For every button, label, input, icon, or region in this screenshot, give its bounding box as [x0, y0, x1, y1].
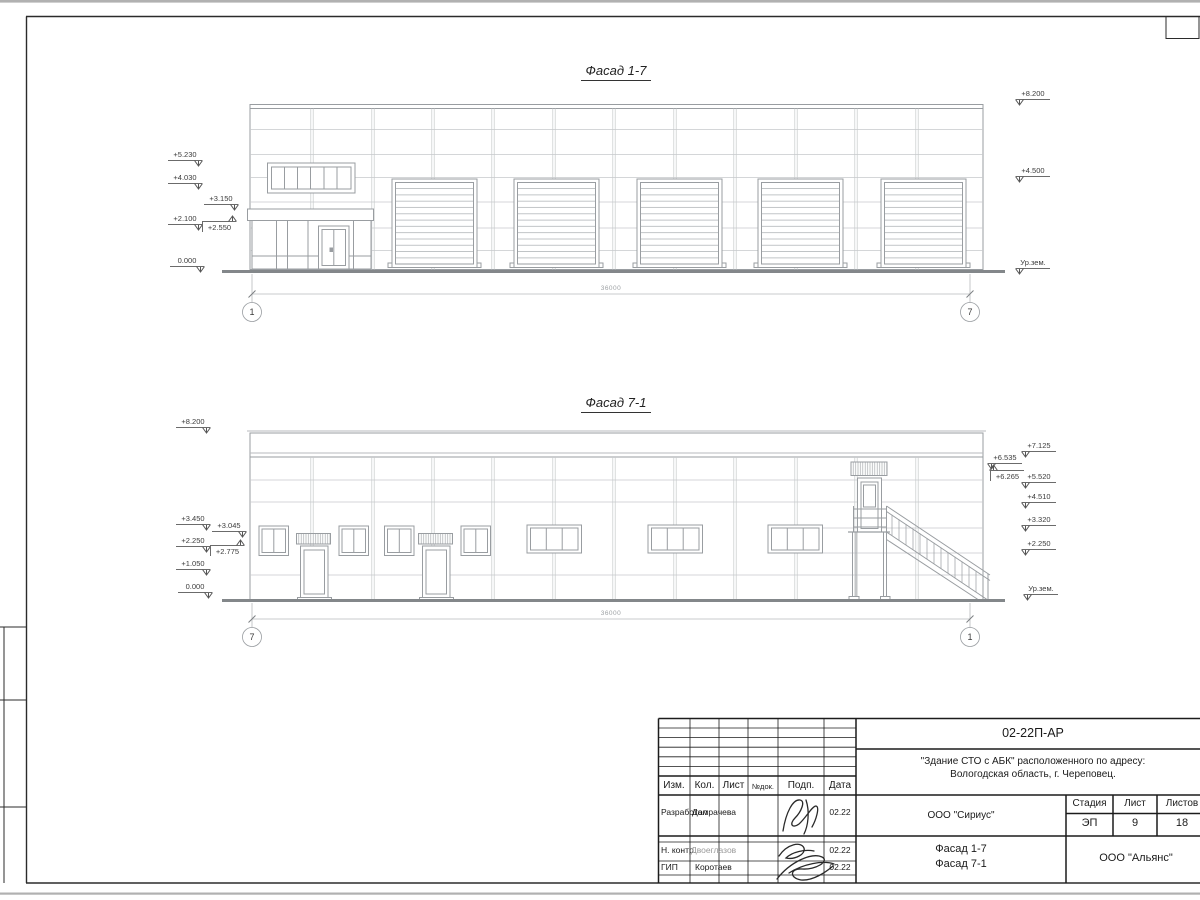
date-developer: 02.22 [824, 807, 856, 817]
window [385, 526, 415, 556]
elevation-mark: +8.200 [176, 417, 210, 428]
stage-value: ЭП [1066, 817, 1113, 829]
garage-door [877, 179, 970, 268]
garage-door [754, 179, 847, 268]
entrance-glazing [248, 163, 374, 269]
facade-top-title: Фасад 1-7 [521, 63, 711, 81]
project-address-line2: Вологодская область, г. Череповец. [860, 769, 1200, 780]
elevation-mark: +2.250 [1022, 539, 1056, 550]
sheets-total: 18 [1157, 817, 1200, 829]
window [461, 526, 491, 556]
stair-rails [887, 506, 991, 602]
small-windows [259, 526, 491, 556]
elevation-mark: 0.000 [178, 582, 212, 593]
door-canopy [297, 534, 330, 544]
elevation-mark: +7.125 [1022, 441, 1056, 452]
elevation-mark: +3.450 [176, 514, 210, 525]
elevation-mark: +1.050 [176, 559, 210, 570]
col-header-list: Лист [719, 780, 748, 791]
col-header-izm: Изм. [658, 780, 690, 791]
sheets-header: Листов [1157, 798, 1200, 809]
drawing-sheet: Фасад 1-7 Фасад 7-1 36000 36000 1 7 7 1 … [0, 0, 1200, 900]
col-header-ndok: №док. [748, 782, 778, 791]
window [339, 526, 369, 556]
signature-developer [783, 800, 818, 834]
window [259, 526, 289, 556]
garage-door [510, 179, 603, 268]
drawing-title-line1: Фасад 1-7 [856, 843, 1066, 855]
axis-label: 7 [244, 632, 260, 642]
date-gip: 02.22 [824, 862, 856, 872]
door-handle [330, 248, 334, 253]
document-code: 02-22П-АР [900, 726, 1166, 740]
elevation-mark: +4.030 [168, 173, 202, 184]
name-control: Двоеглазов [691, 845, 736, 855]
large-windows [527, 525, 823, 553]
entrance-canopy [248, 209, 374, 221]
project-address-line1: "Здание СТО с АБК" расположенного по адр… [860, 756, 1200, 767]
sheet-number: 9 [1113, 817, 1157, 829]
facade-1-axes [243, 274, 980, 322]
col-header-podp: Подп. [778, 780, 824, 791]
role-gip: ГИП [661, 862, 678, 872]
date-control: 02.22 [824, 845, 856, 855]
elevation-mark: +8.200 [1016, 89, 1050, 100]
dimension-label: 36000 [579, 285, 643, 292]
elevation-mark: +4.510 [1022, 492, 1056, 503]
elevation-mark: +4.500 [1016, 166, 1050, 177]
elevation-mark: +2.100 [168, 214, 202, 225]
facade-1-7-drawing [248, 105, 984, 270]
axis-label: 1 [244, 307, 260, 317]
corner-code-box [1166, 17, 1199, 39]
name-developer: Домрачева [692, 807, 736, 817]
elevation-mark: +6.535 [988, 453, 1022, 464]
design-organization: ООО "Сириус" [856, 810, 1066, 821]
elevation-mark: +3.045 [212, 521, 246, 532]
elevation-mark: 0.000 [170, 256, 204, 267]
drawing-title-line2: Фасад 7-1 [856, 858, 1066, 870]
dimension-label: 36000 [579, 610, 643, 617]
stair-stringers [887, 532, 988, 601]
elevation-mark: +2.250 [176, 536, 210, 547]
axis-label: 7 [962, 307, 978, 317]
window [648, 525, 703, 553]
facade-7-1-drawing [247, 431, 990, 602]
elevation-mark: +2.550 [202, 221, 236, 232]
support-posts [853, 532, 887, 599]
elevation-mark: Ур.зем. [1016, 258, 1050, 269]
elevation-mark: +2.775 [210, 545, 244, 556]
entry-door-1 [297, 534, 332, 601]
elevation-mark: +3.320 [1022, 515, 1056, 526]
axis-label: 1 [962, 632, 978, 642]
elevation-mark: +5.230 [168, 150, 202, 161]
window [527, 525, 582, 553]
facade-bottom-title: Фасад 7-1 [521, 395, 711, 413]
entry-door-2 [419, 534, 454, 601]
col-header-data: Дата [824, 780, 856, 791]
garage-door [388, 179, 481, 268]
stage-header: Стадия [1066, 798, 1113, 809]
elevation-mark: +6.265 [990, 470, 1024, 481]
col-header-kol: Кол. [690, 780, 719, 791]
stair-tower [848, 462, 990, 602]
garage-door [633, 179, 726, 268]
garage-doors [388, 179, 970, 268]
contractor-organization: ООО "Альянс" [1066, 852, 1200, 864]
name-gip: Коротаев [695, 862, 732, 872]
left-margin-column [0, 627, 26, 883]
elevation-mark: +3.150 [204, 194, 238, 205]
elevation-mark: +5.520 [1022, 472, 1056, 483]
elevation-mark: Ур.зем. [1024, 584, 1058, 595]
sheet-header: Лист [1113, 798, 1157, 809]
window [768, 525, 823, 553]
stair-balusters [892, 515, 983, 597]
stair-canopy [852, 463, 887, 476]
door-canopy [419, 534, 452, 544]
